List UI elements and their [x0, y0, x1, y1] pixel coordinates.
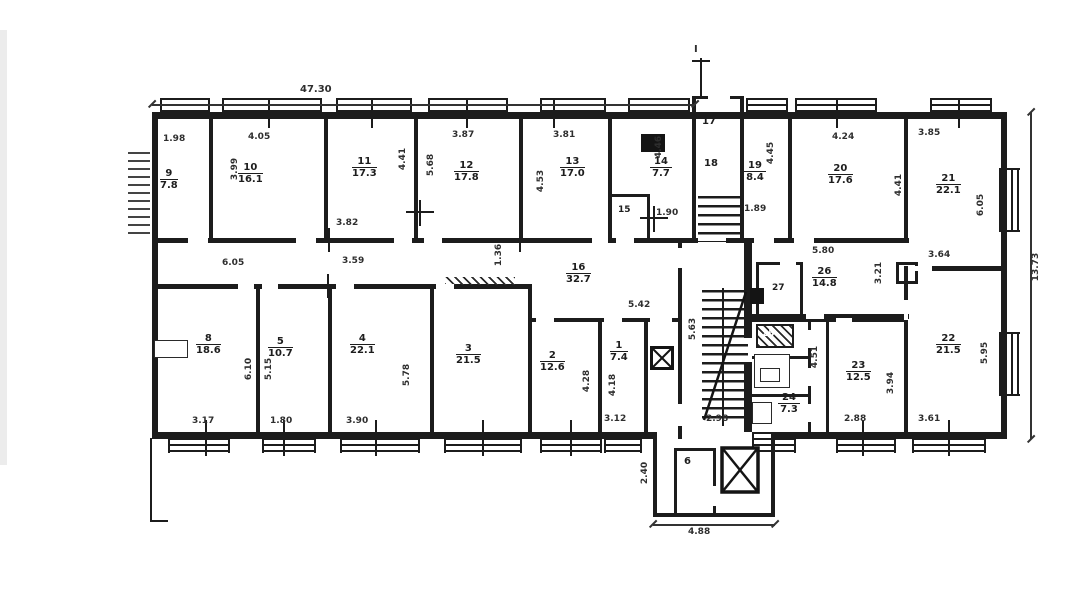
dimension-line [152, 104, 695, 106]
room-label-4: 4 22.1 [350, 333, 375, 356]
window [336, 98, 412, 119]
door-opening [336, 284, 354, 289]
window [604, 432, 642, 453]
room-area: 32.7 [566, 274, 591, 285]
room-number: 1 [610, 340, 628, 352]
dimension-label: 1.36 [494, 244, 504, 266]
wall [744, 318, 906, 322]
room-area: 12.6 [540, 362, 565, 373]
room-label-10: 10 16.1 [238, 162, 263, 185]
room-number: 14 [650, 156, 672, 168]
room-number: 10 [238, 162, 263, 174]
entrance-opening [708, 96, 730, 99]
window [262, 432, 316, 453]
dimension-tick [1027, 435, 1035, 443]
dimension-label: 6.05 [222, 258, 244, 268]
room-label-25: 25 [762, 330, 775, 340]
axis-tick [328, 228, 330, 252]
door-opening [836, 318, 852, 322]
room-area: 17.6 [828, 175, 853, 186]
wall [744, 394, 810, 397]
dimension-label: 4.46 [654, 136, 664, 158]
door-opening [604, 318, 622, 322]
dimension-label: 5.80 [812, 246, 834, 256]
window [540, 98, 606, 119]
dimension-line [653, 524, 775, 526]
room-number: 6 [684, 456, 691, 467]
room-number: 21 [936, 173, 961, 185]
room-number: 17 [702, 116, 716, 127]
window [340, 432, 420, 453]
section-tick [692, 60, 710, 62]
door-opening [780, 262, 796, 265]
room-label-2: 2 12.6 [540, 350, 565, 373]
room-label-9: 9 7.8 [160, 168, 178, 191]
wall [328, 284, 332, 439]
door-opening [808, 404, 811, 422]
wall [324, 119, 328, 243]
room-label-1: 1 7.4 [610, 340, 628, 363]
axis-tick [482, 420, 484, 456]
wall [788, 119, 792, 243]
wall [209, 119, 213, 243]
window [428, 98, 508, 119]
wall [826, 318, 829, 432]
door-opening [904, 300, 908, 320]
room-label-16: 16 32.7 [566, 262, 591, 285]
room-label-21: 21 22.1 [936, 173, 961, 196]
room-area: 7.4 [610, 352, 628, 363]
axis-tick [570, 420, 572, 456]
room-area: 7.3 [778, 404, 800, 415]
room-number: 24 [778, 392, 800, 404]
room-label-13: 13 17.0 [560, 156, 585, 179]
door-opening [713, 486, 716, 506]
dimension-label: 2.40 [640, 462, 650, 484]
room-label-24: 24 7.3 [778, 392, 800, 415]
window [999, 168, 1020, 232]
door-opening [296, 238, 316, 243]
room-area: 16.1 [238, 174, 263, 185]
wall [800, 262, 803, 317]
dimension-label: 4.24 [832, 132, 854, 142]
fixture-sink [760, 368, 780, 382]
wall [653, 432, 657, 517]
fire-escape-hatch [128, 152, 150, 234]
door-opening [536, 318, 554, 322]
dimension-label: 1.98 [163, 134, 185, 144]
axis-cross [653, 206, 655, 232]
room-label-6: 6 [684, 456, 691, 467]
room-area: 7.7 [650, 168, 672, 179]
axis-cross [406, 211, 434, 213]
door-opening [188, 238, 208, 243]
door-opening [678, 404, 682, 426]
wall [528, 284, 532, 439]
window [222, 98, 322, 119]
door-opening [592, 238, 608, 243]
axis-tick [519, 228, 521, 252]
window [160, 98, 210, 119]
dimension-label: 4.05 [248, 132, 270, 142]
wall [674, 448, 677, 513]
door-opening [262, 284, 278, 289]
wall [152, 112, 158, 439]
dimension-label: 4.53 [536, 170, 546, 192]
wall [256, 284, 260, 439]
door-opening [794, 238, 814, 243]
dimension-label: 5.15 [264, 358, 274, 380]
room-label-17: 17 [702, 116, 716, 127]
room-label-15: 15 [618, 206, 631, 216]
plinth-line [150, 520, 168, 522]
axis-tick [862, 420, 864, 456]
dimension-label: 1.90 [656, 208, 678, 218]
room-area: 10.7 [268, 348, 293, 359]
door-opening [616, 238, 634, 243]
wall [519, 119, 523, 243]
wall [904, 266, 908, 439]
door-opening [238, 284, 254, 289]
room-number: 8 [196, 333, 221, 345]
dimension-label: 3.90 [346, 416, 368, 426]
dimension-label: 4.88 [688, 527, 710, 537]
wall [692, 96, 696, 243]
dimension-label: 2.98 [706, 414, 728, 424]
room-area: 22.1 [350, 345, 375, 356]
room-label-19: 19 8.4 [744, 160, 766, 183]
wall [612, 194, 650, 197]
axis-tick [948, 420, 950, 456]
room-number: 18 [704, 158, 718, 169]
dimension-tick [771, 520, 779, 528]
dimension-label: 3.64 [928, 250, 950, 260]
room-area: 7.8 [160, 180, 178, 191]
section-label: I [694, 44, 698, 55]
room-number: 4 [350, 333, 375, 345]
room-area: 14.8 [812, 278, 837, 289]
room-label-3: 3 21.5 [456, 343, 481, 366]
room-label-11: 11 17.3 [352, 156, 377, 179]
floor-plan: 47.30 13.73 1.98 4.05 3.99 3.82 4.41 3.8… [0, 0, 1077, 600]
axis-tick [836, 100, 838, 128]
dimension-label: 5.78 [402, 364, 412, 386]
dimension-label: 3.82 [336, 218, 358, 228]
window [154, 340, 188, 358]
hatched-wall [445, 277, 515, 285]
dimension-label: 4.18 [608, 374, 618, 396]
dimension-label: 3.94 [886, 372, 896, 394]
dimension-label: 3.85 [918, 128, 940, 138]
door-opening [650, 318, 672, 322]
room-number: 19 [744, 160, 766, 172]
wall [430, 284, 434, 439]
wall [598, 318, 602, 439]
room-label-22: 22 21.5 [936, 333, 961, 356]
dimension-label: 1.89 [744, 204, 766, 214]
room-number: 3 [456, 343, 481, 355]
room-label-27: 27 [772, 284, 785, 294]
plinth-line [150, 438, 152, 522]
door-opening [394, 238, 412, 243]
window [999, 332, 1020, 396]
stair-run-line [700, 288, 750, 426]
room-label-8: 8 18.6 [196, 333, 221, 356]
room-number: 16 [566, 262, 591, 274]
section-line [700, 58, 702, 98]
dimension-label: 4.51 [810, 346, 820, 368]
wall [674, 448, 716, 451]
axis-tick [375, 420, 377, 456]
door-opening [678, 248, 682, 268]
dimension-label: 47.30 [300, 84, 332, 95]
dimension-label: 3.61 [918, 414, 940, 424]
room-area: 22.1 [936, 185, 961, 196]
room-number: 27 [772, 284, 785, 294]
dimension-label: 13.73 [1031, 253, 1041, 281]
room-label-5: 5 10.7 [268, 336, 293, 359]
door-opening [912, 266, 932, 271]
room-area: 21.5 [456, 355, 481, 366]
dimension-label: 2.88 [844, 414, 866, 424]
vent-shaft [650, 346, 674, 370]
stair-treads [698, 196, 740, 242]
room-number: 26 [812, 266, 837, 278]
room-area: 17.0 [560, 168, 585, 179]
room-label-12: 12 17.8 [454, 160, 479, 183]
fixture-wc [752, 402, 772, 424]
dimension-label: 5.95 [980, 342, 990, 364]
axis-tick [327, 274, 329, 298]
dimension-label: 4.41 [398, 148, 408, 170]
wall [608, 119, 612, 243]
room-area: 18.6 [196, 345, 221, 356]
elevator-shaft [720, 446, 760, 494]
window [746, 98, 788, 119]
wall [644, 318, 648, 439]
dimension-label: 6.10 [244, 358, 254, 380]
room-area: 17.3 [352, 168, 377, 179]
door-opening [436, 284, 454, 289]
room-area: 21.5 [936, 345, 961, 356]
room-number: 25 [762, 330, 775, 340]
wall [653, 513, 775, 517]
axis-cross [419, 200, 421, 226]
duct-box [750, 288, 764, 304]
dimension-label: 5.68 [426, 154, 436, 176]
window [836, 432, 896, 453]
dimension-label: 6.05 [976, 194, 986, 216]
dimension-label: 3.12 [604, 414, 626, 424]
room-label-23: 23 12.5 [846, 360, 871, 383]
dimension-label: 3.87 [452, 130, 474, 140]
dimension-label: 3.81 [553, 130, 575, 140]
door-opening [808, 368, 811, 386]
wall [414, 119, 418, 243]
room-number: 15 [618, 206, 631, 216]
room-area: 12.5 [846, 372, 871, 383]
door-opening [806, 314, 824, 319]
dimension-label: 4.41 [894, 174, 904, 196]
dimension-label: 3.17 [192, 416, 214, 426]
room-number: 13 [560, 156, 585, 168]
door-opening [754, 238, 774, 243]
room-number: 9 [160, 168, 178, 180]
dimension-label: 4.45 [766, 142, 776, 164]
dimension-label: 3.59 [342, 256, 364, 266]
room-label-26: 26 14.8 [812, 266, 837, 289]
dimension-label: 4.28 [582, 370, 592, 392]
door-opening [424, 238, 442, 243]
window [168, 432, 230, 453]
room-number: 2 [540, 350, 565, 362]
floor-plan-scan: 47.30 13.73 1.98 4.05 3.99 3.82 4.41 3.8… [0, 0, 1077, 600]
window [930, 98, 992, 119]
room-label-20: 20 17.6 [828, 163, 853, 186]
room-number: 12 [454, 160, 479, 172]
room-area: 8.4 [744, 172, 766, 183]
axis-tick [958, 100, 960, 128]
dimension-label: 3.21 [874, 262, 884, 284]
room-area: 17.8 [454, 172, 479, 183]
room-label-14: 14 7.7 [650, 156, 672, 179]
room-number: 20 [828, 163, 853, 175]
dimension-label: 1.80 [270, 416, 292, 426]
room-number: 11 [352, 156, 377, 168]
window [628, 98, 690, 119]
room-number: 23 [846, 360, 871, 372]
room-number: 22 [936, 333, 961, 345]
room-number: 5 [268, 336, 293, 348]
dimension-label: 5.42 [628, 300, 650, 310]
wall [904, 119, 908, 243]
dimension-label: 5.63 [688, 318, 698, 340]
room-label-18: 18 [704, 158, 718, 169]
